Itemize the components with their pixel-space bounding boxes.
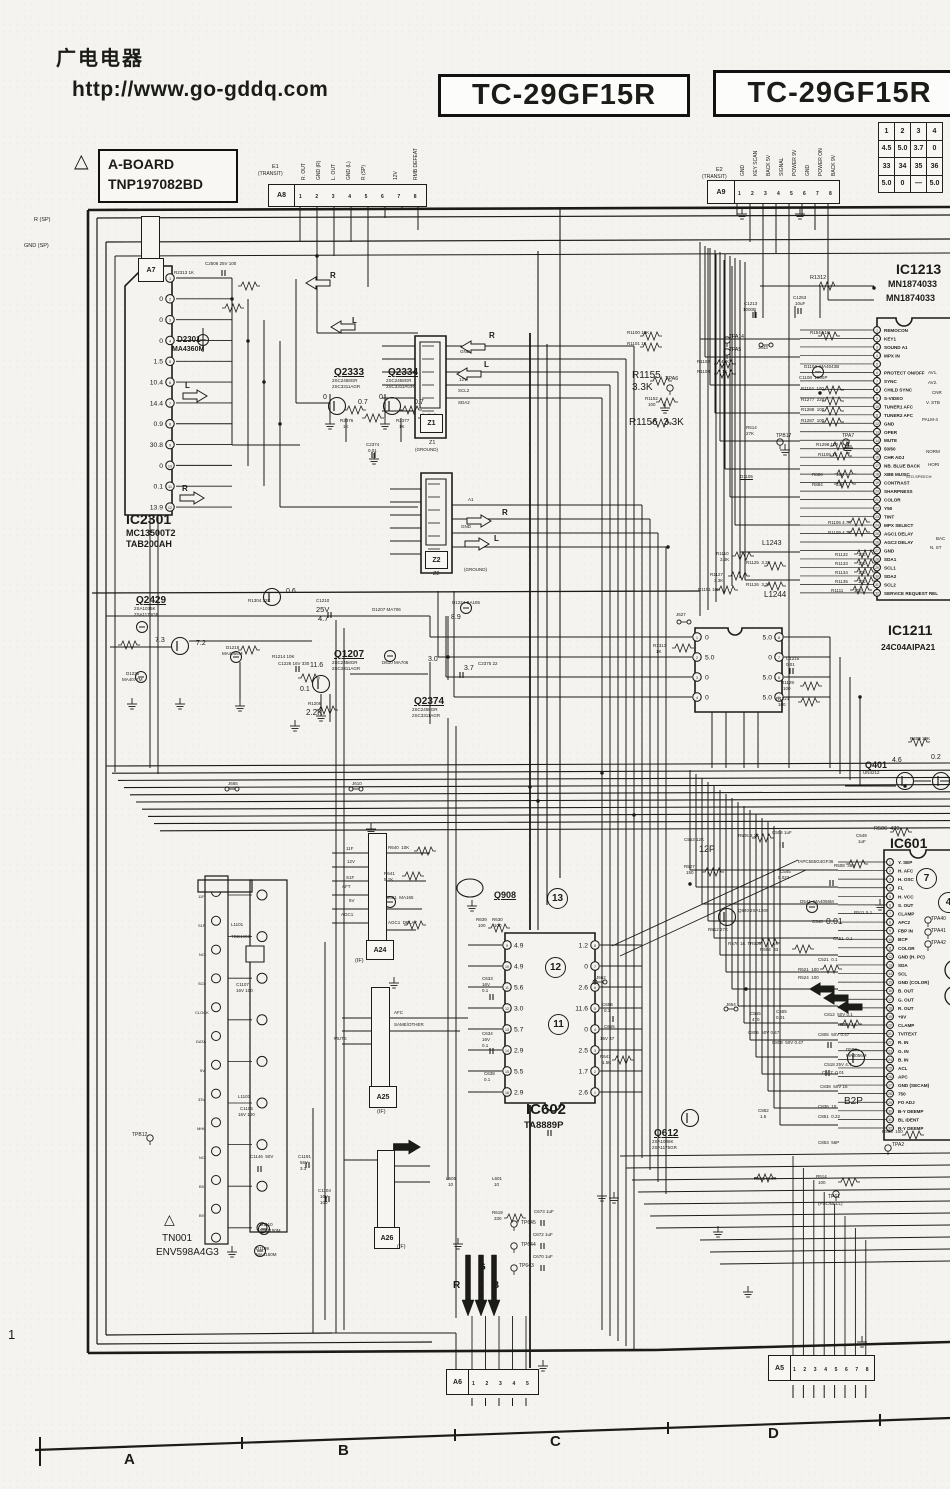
svg-text:14: 14 <box>505 1049 509 1053</box>
svg-text:MPX SELECT: MPX SELECT <box>884 523 914 528</box>
connector-a6-pin: 4 <box>513 1381 516 1387</box>
svg-text:9: 9 <box>506 944 508 948</box>
schematic-label: C1191 <box>298 1155 311 1160</box>
schematic-label: TPA5 <box>729 348 741 353</box>
svg-text:TINT: TINT <box>884 515 894 520</box>
schematic-label: S1F <box>346 876 354 881</box>
svg-text:ACL: ACL <box>898 1066 908 1071</box>
schematic-label: 0.01 <box>368 449 377 454</box>
schematic-label: 0.7 <box>414 399 424 406</box>
schematic-label: L1244 <box>764 591 786 599</box>
schematic-label: 2SC3311AGR <box>332 385 360 390</box>
svg-text:0: 0 <box>584 964 588 971</box>
circled-pin-number: 7 <box>916 868 937 889</box>
schematic-label: R1110 <box>716 552 729 557</box>
schematic-label: 11F <box>346 847 353 852</box>
connector-a24-strip <box>368 833 387 941</box>
schematic-label: BACK 9V <box>832 155 837 176</box>
schematic-label: R521 100 <box>798 968 819 973</box>
svg-text:0: 0 <box>705 695 709 702</box>
connector-a9-strip <box>733 180 840 204</box>
schematic-label: NC <box>199 1156 205 1160</box>
connector-a5-pin: 4 <box>824 1367 827 1373</box>
connector-a8-pin: 5 <box>365 194 368 200</box>
schematic-label: 4.7 <box>318 615 328 623</box>
schematic-label: TPB12 <box>132 1133 147 1138</box>
schematic-label: (GROUND) <box>464 568 487 573</box>
schematic-label: 16V 100 <box>236 989 253 994</box>
schematic-label: 0.01 <box>776 1016 785 1021</box>
schematic-label: C672 <box>533 1233 544 1238</box>
schematic-label: D1225 <box>126 672 139 677</box>
schematic-label: POWER ON <box>819 148 824 176</box>
svg-text:12: 12 <box>505 1007 509 1011</box>
svg-text:12: 12 <box>168 506 172 510</box>
schematic-label: C1104 <box>318 1189 331 1194</box>
schematic-label: CNR <box>932 391 942 396</box>
connector-a8-strip <box>293 184 427 207</box>
svg-text:3: 3 <box>169 319 171 323</box>
schematic-label: C1108 1000P <box>799 376 827 381</box>
schematic-label: IC601 <box>890 836 927 851</box>
schematic-label: 12V <box>347 860 355 865</box>
schematic-label: AV2. <box>928 381 937 386</box>
schematic-label: C633 <box>482 977 493 982</box>
schematic-label: 0 <box>323 394 327 401</box>
svg-text:2.6: 2.6 <box>579 1090 589 1097</box>
schematic-label: MUTE <box>334 1037 347 1042</box>
warning-triangle-icon: △ <box>164 1212 175 1227</box>
schematic-label: HORI <box>928 463 939 468</box>
svg-text:AFC2: AFC2 <box>898 920 910 925</box>
schematic-label: 5V <box>349 899 355 904</box>
schematic-label: J643 <box>758 346 768 351</box>
schematic-label: 33V <box>198 1098 205 1102</box>
svg-text:GND: GND <box>884 421 895 426</box>
svg-text:TUNER1 AFC: TUNER1 AFC <box>884 404 914 409</box>
svg-text:FBP IN: FBP IN <box>898 929 914 934</box>
connector-a8-pin: 4 <box>348 194 351 200</box>
svg-text:CHR ADJ: CHR ADJ <box>884 455 905 460</box>
svg-text:11: 11 <box>875 413 879 417</box>
svg-text:5.5: 5.5 <box>514 1069 524 1076</box>
schematic-label: C1213 <box>744 302 757 307</box>
svg-text:22: 22 <box>888 1041 892 1045</box>
schematic-label: MN1874033 <box>888 280 937 289</box>
svg-text:8: 8 <box>594 944 596 948</box>
svg-text:23: 23 <box>888 1049 892 1053</box>
svg-text:11: 11 <box>168 485 172 489</box>
svg-text:0: 0 <box>159 317 163 324</box>
schematic-label: L <box>484 361 489 369</box>
svg-text:4: 4 <box>696 696 698 700</box>
grid-column-label: D <box>768 1426 779 1442</box>
schematic-label: AFC <box>394 1011 403 1016</box>
schematic-label: 0.022 <box>778 876 789 881</box>
connector-a6-pin: 5 <box>526 1381 529 1387</box>
svg-text:0: 0 <box>705 675 709 682</box>
svg-text:750: 750 <box>898 1092 906 1097</box>
connector-a9-pin: 7 <box>816 191 819 197</box>
svg-text:SHARPNESS: SHARPNESS <box>884 489 913 494</box>
svg-text:PROTECT ON/OFF: PROTECT ON/OFF <box>884 370 925 375</box>
schematic-label: C504 1uF <box>772 831 792 836</box>
schematic-label: 4.6 <box>892 757 902 764</box>
schematic-label: SCL <box>198 982 206 986</box>
schematic-label: R514 <box>816 1175 827 1180</box>
schematic-label: D1109 <box>256 1247 269 1252</box>
svg-text:AGC1 DELAY: AGC1 DELAY <box>884 532 913 537</box>
schematic-label: GND (L) <box>347 161 352 180</box>
connector-a9-pin: 8 <box>829 191 832 197</box>
schematic-label: 2SA1175GR <box>652 1146 677 1151</box>
schematic-label: 3.7 <box>464 665 474 672</box>
schematic-label: R403 10K <box>910 737 930 742</box>
svg-text:Y50: Y50 <box>884 506 893 511</box>
schematic-label: POWER 9V <box>793 150 798 176</box>
svg-text:R. IN: R. IN <box>898 1040 909 1045</box>
schematic-label: R1109 4.7K <box>828 531 851 536</box>
schematic-label: 0.1 <box>604 1009 610 1014</box>
schematic-label: R1134 <box>835 571 848 576</box>
schematic-label: MA4056M <box>222 652 243 657</box>
schematic-label: C838 50V 16 <box>820 1085 848 1090</box>
schematic-label: ENV598A4G3 <box>156 1248 219 1259</box>
svg-text:6: 6 <box>169 381 171 385</box>
warning-triangle-icon: △ <box>74 152 89 172</box>
schematic-label: GND <box>460 350 470 355</box>
svg-text:5.0: 5.0 <box>763 635 773 642</box>
schematic-label: 0.1 <box>482 1044 488 1049</box>
schematic-label: (TRANSIT) <box>702 175 727 180</box>
connector-a5-pin: 8 <box>866 1367 869 1373</box>
schematic-label: R1277 220 <box>801 398 824 403</box>
schematic-label: 1.5 <box>760 1115 766 1120</box>
svg-text:SERVICE REQUEST REL: SERVICE REQUEST REL <box>884 591 938 596</box>
schematic-label: R1129 <box>781 681 794 686</box>
svg-text:3: 3 <box>876 345 878 349</box>
svg-text:8: 8 <box>876 388 878 392</box>
schematic-label: 25V <box>316 606 329 614</box>
svg-text:13: 13 <box>875 430 879 434</box>
schematic-label: 3.3K <box>714 579 723 584</box>
schematic-label: MA4056M <box>846 1054 867 1059</box>
svg-text:13: 13 <box>888 963 892 967</box>
schematic-label: 16V <box>482 983 490 988</box>
schematic-label: C673 <box>534 1210 545 1215</box>
connector-a8-pin: 1 <box>299 194 302 200</box>
schematic-label: J662 <box>596 976 606 981</box>
schematic-label: N. ST <box>930 546 942 551</box>
connector-a7-strip <box>141 216 160 262</box>
connector-a9-pin: 4 <box>777 191 780 197</box>
svg-text:30.8: 30.8 <box>150 442 163 449</box>
schematic-label: 2.2K <box>306 709 322 717</box>
schematic-label: 1K <box>343 425 349 430</box>
svg-text:GND (H. PC): GND (H. PC) <box>898 954 925 959</box>
svg-text:20: 20 <box>875 490 879 494</box>
svg-text:27: 27 <box>888 1084 892 1088</box>
svg-text:13: 13 <box>505 1028 509 1032</box>
schematic-label: C853 56P <box>818 1141 839 1146</box>
schematic-label: TAPC555G4GF36 <box>797 860 833 865</box>
svg-text:6: 6 <box>594 986 596 990</box>
svg-text:9: 9 <box>889 929 891 933</box>
schematic-label: C553 12K <box>684 838 704 843</box>
svg-text:BCP: BCP <box>898 937 908 942</box>
svg-text:31: 31 <box>875 583 879 587</box>
schematic-label: R <box>489 332 495 340</box>
schematic-label: 3.3 <box>300 1167 306 1172</box>
schematic-label: R1151 10K <box>698 588 720 593</box>
svg-text:S-VIDEO: S-VIDEO <box>884 396 903 401</box>
schematic-label: R1127 <box>710 573 723 578</box>
schematic-label: C670 <box>533 1255 544 1260</box>
schematic-label: PALM-4 <box>922 418 938 423</box>
connector-a5-pin: 7 <box>855 1367 858 1373</box>
schematic-label: 11F <box>198 895 205 899</box>
schematic-label: R639 <box>476 918 487 923</box>
connector-a9-pin: 3 <box>764 191 767 197</box>
svg-text:18: 18 <box>875 473 879 477</box>
schematic-label: 100 <box>854 589 862 594</box>
schematic-label: J610 <box>352 782 362 787</box>
schematic-label: 1K <box>656 650 662 655</box>
schematic-label: C555 <box>776 1010 787 1015</box>
schematic-label: R1101 1K <box>627 342 647 347</box>
svg-text:MUTE: MUTE <box>884 438 897 443</box>
schematic-label: 100 <box>494 924 502 929</box>
schematic-label: TN001 <box>162 1234 192 1245</box>
schematic-label: TPA40 <box>931 917 946 922</box>
schematic-label: 11.6 <box>310 662 323 669</box>
schematic-label: 2SC3311AGR <box>412 714 440 719</box>
schematic-label: IC602 <box>526 1102 566 1118</box>
svg-text:1.7: 1.7 <box>579 1069 589 1076</box>
schematic-label: TPA14 <box>729 335 744 340</box>
schematic-label: D2301 <box>177 336 201 344</box>
schematic-label: 3.3K <box>632 383 653 394</box>
schematic-label: IC1211 <box>888 623 932 638</box>
schematic-label: Q2334 <box>388 368 418 379</box>
connector-a9-pin: 5 <box>790 191 793 197</box>
svg-text:29: 29 <box>875 566 879 570</box>
svg-text:1: 1 <box>169 277 171 281</box>
schematic-label: IC2301 <box>126 512 171 527</box>
schematic-label: 0.7 <box>358 399 368 406</box>
connector-a25-label: A25 <box>369 1086 397 1108</box>
svg-text:5.0: 5.0 <box>705 655 715 662</box>
schematic-label: 100 <box>320 1201 328 1206</box>
connector-a5-pin: 5 <box>835 1367 838 1373</box>
schematic-label: 100 <box>858 562 866 567</box>
schematic-label: R (SP) <box>362 165 367 180</box>
schematic-label: C1226 16V 330 <box>278 662 309 667</box>
svg-text:SYNC: SYNC <box>884 379 897 384</box>
schematic-label: C656 <box>602 1003 613 1008</box>
svg-text:5.6: 5.6 <box>514 985 524 992</box>
svg-text:0: 0 <box>159 296 163 303</box>
svg-text:5.0: 5.0 <box>763 695 773 702</box>
svg-text:MPX IN: MPX IN <box>884 353 901 358</box>
schematic-label: R1103 <box>697 370 710 375</box>
svg-text:6: 6 <box>778 676 780 680</box>
svg-text:6: 6 <box>889 903 891 907</box>
schematic-label: L. OUT <box>332 164 337 180</box>
schematic-label: E2 <box>716 168 723 174</box>
connector-a6-pin: 3 <box>499 1381 502 1387</box>
schematic-label: C852 <box>758 1109 769 1114</box>
svg-text:REMOCON: REMOCON <box>884 328 909 333</box>
svg-text:G. OUT: G. OUT <box>898 997 914 1002</box>
schematic-label: TP643 <box>519 1264 534 1269</box>
svg-text:2: 2 <box>876 337 878 341</box>
schematic-label: C808 50V 0.47 <box>772 1041 803 1046</box>
svg-text:7: 7 <box>169 402 171 406</box>
schematic-label: R1100 10K <box>627 331 649 336</box>
svg-text:3: 3 <box>696 676 698 680</box>
svg-text:26: 26 <box>888 1075 892 1079</box>
schematic-label: NC <box>199 953 205 957</box>
svg-text:H. OSC: H. OSC <box>898 877 915 882</box>
schematic-label: D601 MA165 <box>386 896 414 901</box>
schematic-label: R <box>453 1281 460 1292</box>
connector-a6-pin: 2 <box>486 1381 489 1387</box>
schematic-label: R511 <box>854 911 864 916</box>
svg-text:FO ADJ: FO ADJ <box>898 1100 915 1105</box>
schematic-label: 16V 100 <box>238 1113 255 1118</box>
schematic-label: 1uF <box>858 840 866 845</box>
grid-column-label: A <box>124 1452 135 1468</box>
schematic-label: R1221 <box>776 697 789 702</box>
schematic-label: TPB17 <box>776 434 791 439</box>
schematic-label: R1313 <box>653 644 666 649</box>
schematic-label: AV1. <box>928 371 937 376</box>
schematic-label: C1107 <box>236 983 249 988</box>
svg-text:1: 1 <box>876 329 878 333</box>
schematic-label: G <box>478 1263 486 1274</box>
schematic-label: R506 470 <box>874 827 899 833</box>
schematic-label: 2SC3311AGR <box>332 667 360 672</box>
svg-text:25: 25 <box>875 532 879 536</box>
svg-text:OPER: OPER <box>884 430 898 435</box>
schematic-label: D1218 <box>226 646 239 651</box>
schematic-label: C2506 25V 100 <box>205 262 236 267</box>
schematic-label: J665 <box>228 782 238 787</box>
schematic-label: 100 <box>648 403 656 408</box>
svg-text:7: 7 <box>876 379 878 383</box>
schematic-label: 16V 47 <box>600 1037 614 1042</box>
schematic-label: 5.1K <box>384 878 393 883</box>
schematic-label: 12V <box>459 378 467 383</box>
connector-z1-label: Z1 <box>420 414 443 433</box>
schematic-label: R <box>502 509 508 517</box>
svg-text:3: 3 <box>594 1049 596 1053</box>
schematic-label: 100 <box>478 924 486 929</box>
schematic-label: C521 0.1 <box>818 958 838 963</box>
schematic-label: Q2374 <box>414 697 444 708</box>
svg-text:5: 5 <box>169 360 171 364</box>
schematic-label: 1000P <box>743 308 756 313</box>
schematic-label: R1206 <box>308 702 321 707</box>
svg-text:H. AFC: H. AFC <box>898 869 914 874</box>
schematic-label: B9 <box>199 1214 204 1218</box>
svg-text:5: 5 <box>889 895 891 899</box>
svg-text:4.9: 4.9 <box>514 964 524 971</box>
schematic-page: 广电电器 http://www.go-gddq.com TC-29GF15R T… <box>0 0 950 1489</box>
svg-text:2.6: 2.6 <box>579 985 589 992</box>
schematic-label: Q2333 <box>334 368 364 379</box>
svg-text:B. OUT: B. OUT <box>898 989 914 994</box>
schematic-label: D1207 MA706 <box>372 608 401 613</box>
schematic-label: 1.5K <box>602 1061 611 1066</box>
svg-text:1: 1 <box>696 636 698 640</box>
schematic-label: TPA42 <box>931 941 946 946</box>
svg-text:H. VCC: H. VCC <box>898 894 914 899</box>
schematic-label: R <box>330 272 336 280</box>
schematic-label: BACK 5V <box>767 155 772 176</box>
schematic-label: R. OUT <box>302 163 307 180</box>
connector-a9-pin: 2 <box>751 191 754 197</box>
schematic-label: Q2429 <box>136 596 166 607</box>
schematic-label: IC1213 <box>896 262 941 277</box>
connector-a5-pin: 6 <box>845 1367 848 1373</box>
schematic-label: C638 <box>484 1072 495 1077</box>
svg-text:GND (SECAM): GND (SECAM) <box>898 1083 930 1088</box>
schematic-label: (PSC/BELL) <box>818 1202 843 1207</box>
svg-text:9: 9 <box>876 396 878 400</box>
svg-text:2.9: 2.9 <box>514 1048 524 1055</box>
schematic-label: TP61 <box>828 1195 840 1200</box>
schematic-label: D541 MA4056M <box>800 900 834 905</box>
schematic-label: RMB DEFEAT <box>414 148 419 180</box>
svg-text:32: 32 <box>875 591 879 595</box>
svg-text:27: 27 <box>875 549 879 553</box>
schematic-label: 100 <box>783 687 791 692</box>
svg-text:SDA: SDA <box>898 963 908 968</box>
schematic-label: R503 100 <box>882 1130 903 1135</box>
connector-a25-strip <box>371 987 390 1087</box>
schematic-label: C548 <box>812 920 823 925</box>
svg-text:SCL: SCL <box>898 972 907 977</box>
schematic-label: C805 50V 0.47 <box>818 1033 849 1038</box>
svg-text:20: 20 <box>888 1024 892 1028</box>
svg-text:6: 6 <box>876 371 878 375</box>
schematic-label: (GROUND) <box>415 448 438 453</box>
svg-text:APC: APC <box>898 1075 908 1080</box>
svg-text:1.5: 1.5 <box>154 359 164 366</box>
svg-text:R. OUT: R. OUT <box>898 1006 914 1011</box>
schematic-label: C806 50V 0.47 <box>748 1031 779 1036</box>
schematic-label: 2SC2458GR <box>332 379 358 384</box>
svg-text:5: 5 <box>594 1007 596 1011</box>
schematic-label: 3.3K <box>720 558 729 563</box>
grid-column-label: C <box>550 1434 561 1450</box>
schematic-label: R507 <box>684 865 695 870</box>
schematic-label: GND <box>741 165 746 176</box>
schematic-label: MA4360M <box>172 346 204 353</box>
schematic-label: 10uF <box>795 302 805 307</box>
svg-text:BL IDENT: BL IDENT <box>898 1117 919 1122</box>
schematic-label: 0.2 <box>931 754 941 761</box>
schematic-label: BAC <box>936 537 945 542</box>
schematic-label: S1F <box>198 924 205 928</box>
schematic-label: C1146 50V <box>250 1155 273 1160</box>
svg-text:17: 17 <box>875 464 879 468</box>
schematic-label: MA4150M <box>260 1229 281 1234</box>
schematic-label: L601 <box>492 1177 502 1182</box>
schematic-label: Z1 <box>429 441 435 447</box>
